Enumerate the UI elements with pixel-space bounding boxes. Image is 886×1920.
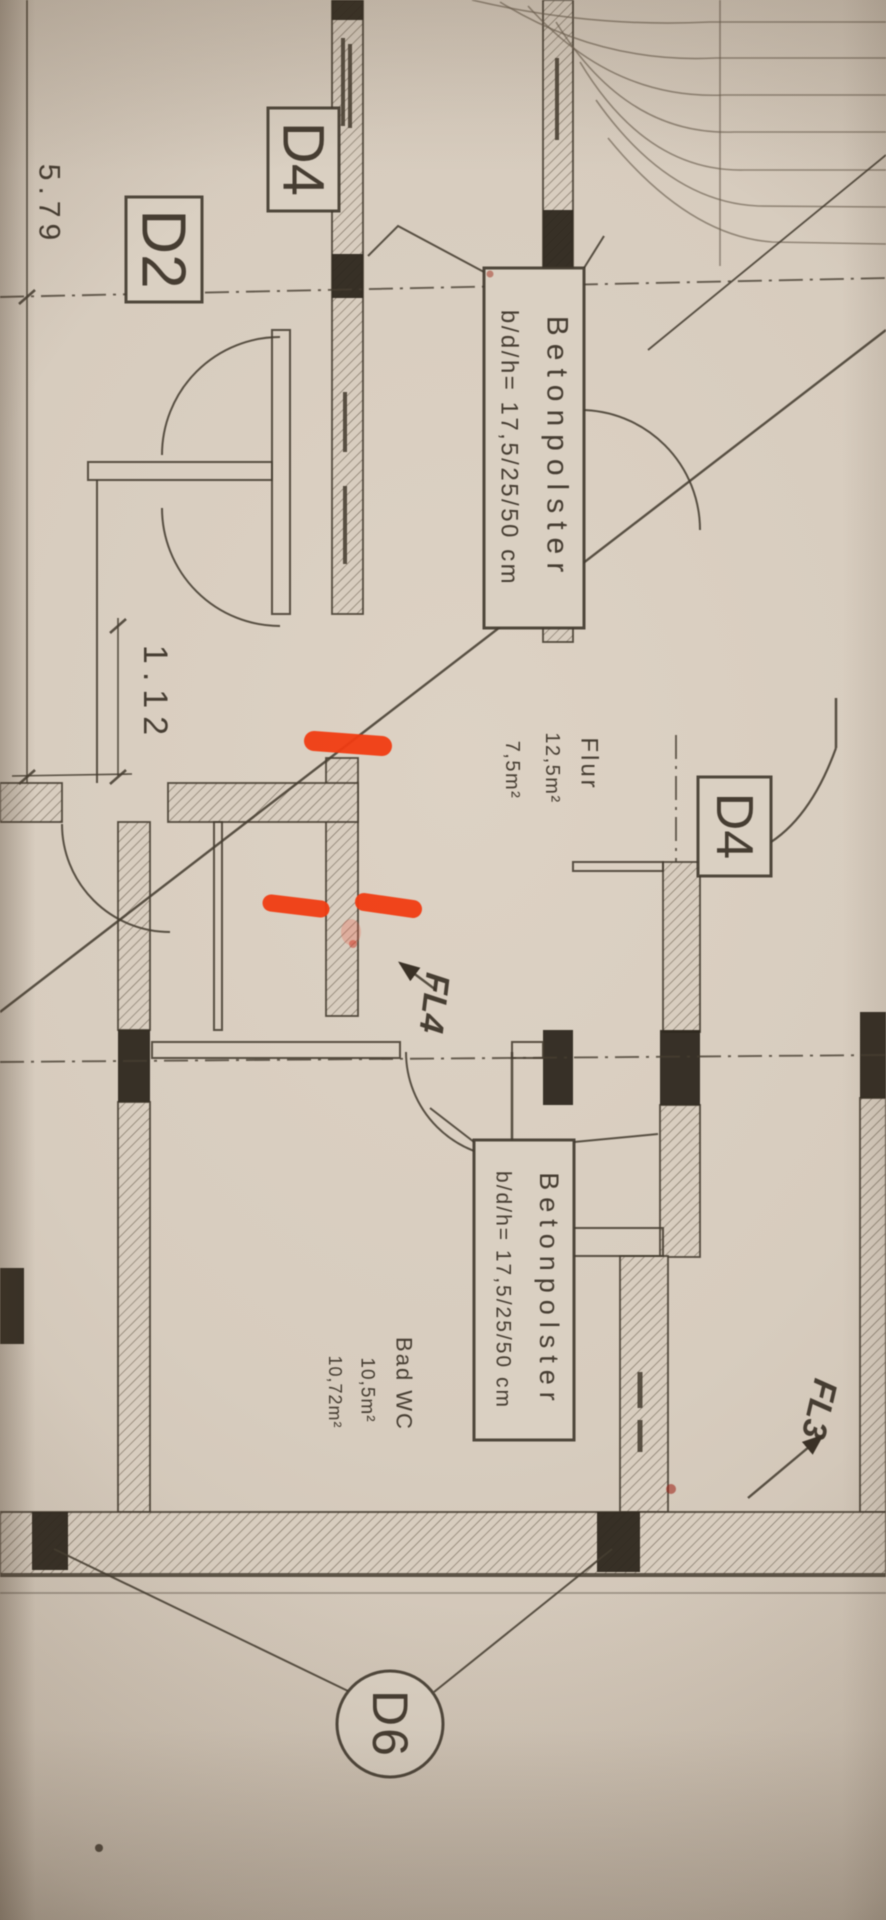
betonpolster-lower-line2: b/d/h= 17,5/25/50 cm [492,1171,515,1409]
floor-plan-photo: 5.79 D4 D2 Betonpolster b/d/h= 17,5/25/5… [0,0,886,1920]
room-badwc-name: Bad WC [392,1337,417,1431]
red-marker-dash-left [271,903,321,909]
red-marker-line-upper [314,741,382,746]
betonpolster-lower-line1: Betonpolster [534,1172,564,1408]
stair-treads [472,0,886,266]
red-dot-wall-corner [666,1484,676,1494]
label-fl3: FL3 [794,1375,845,1443]
floor-plan-drawing: 5.79 D4 D2 Betonpolster b/d/h= 17,5/25/5… [0,0,886,1920]
label-fl4: FL4 [411,971,456,1036]
betonpolster-upper-line1: Betonpolster [541,316,574,580]
fl3-arrow [748,1436,822,1498]
red-dot-box-corner [487,271,494,278]
dim-1-12: 1.12 [136,645,174,743]
room-flur-area2: 7,5m² [501,741,523,800]
room-flur-area1: 12,5m² [541,732,563,803]
label-d4-right: D4 [705,793,763,859]
dimension-lines [12,0,132,784]
red-marker-dot-small [349,940,357,948]
red-marker-dash-right [364,902,413,909]
betonpolster-upper-line2: b/d/h= 17,5/25/50 cm [496,310,523,586]
label-d6: D6 [362,1690,418,1758]
room-badwc-area2: 10,72m² [325,1355,345,1428]
label-d4-top: D4 [271,122,336,196]
dim-5-79: 5.79 [33,164,66,246]
label-d2: D2 [129,209,198,288]
note-leaders [54,226,822,1692]
room-flur-name: Flur [576,737,603,790]
print-dot [95,1844,103,1852]
room-badwc-area1: 10,5m² [357,1357,378,1422]
